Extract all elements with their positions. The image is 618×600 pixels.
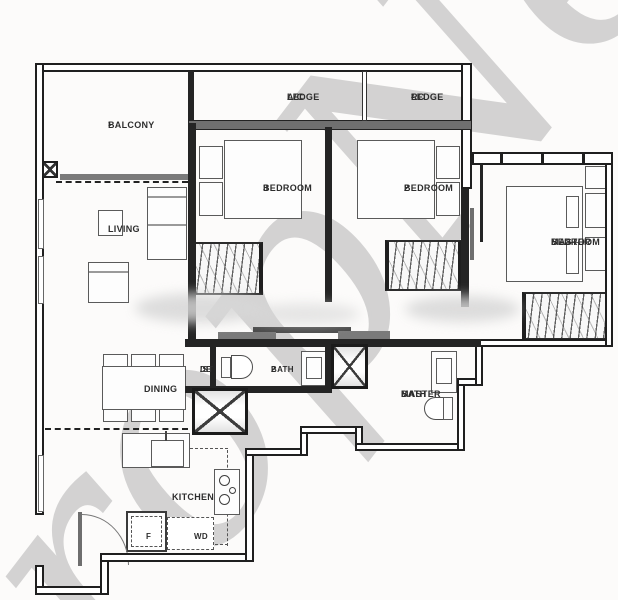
wall (35, 63, 472, 72)
wall (362, 71, 367, 121)
balcony-column (42, 161, 58, 178)
toilet-master-bath (424, 397, 444, 420)
window (38, 199, 44, 249)
shower (331, 344, 368, 389)
balcony-boundary-dashed (56, 181, 188, 183)
wall (100, 553, 253, 562)
wall (475, 339, 613, 347)
wall (300, 426, 362, 434)
entrance-door (78, 512, 82, 566)
wall (461, 189, 469, 307)
sliding-door (338, 331, 390, 339)
sofa-seat-line (148, 196, 186, 198)
dining-chair (131, 354, 156, 367)
wardrobe-bedroom2 (385, 240, 462, 291)
dining-chair (159, 409, 184, 422)
sofa (88, 262, 129, 303)
bed-bedroom2 (357, 140, 435, 219)
wall (245, 450, 254, 562)
sofa-seat-line (148, 224, 186, 226)
nightstand (436, 146, 460, 179)
wall (355, 443, 465, 451)
master-bedroom-door (470, 208, 474, 260)
kitchen-boundary-dashed (45, 428, 188, 430)
window-mullion (500, 152, 503, 165)
wardrobe-bedroom3 (191, 242, 263, 295)
wardrobe-master-bedroom (522, 292, 609, 340)
dining-chair (159, 354, 184, 367)
wall (480, 164, 483, 242)
wall (605, 152, 613, 347)
counter-dashed (190, 448, 228, 449)
window (38, 455, 44, 512)
wall (457, 378, 465, 451)
blur-artifact (250, 303, 360, 325)
dining-chair (103, 354, 128, 367)
sofa-seat-line (89, 271, 128, 273)
blur-artifact (405, 296, 520, 322)
wall (188, 71, 194, 123)
nightstand (199, 182, 223, 216)
window-mullion (582, 152, 585, 165)
sliding-door (218, 332, 276, 339)
window-mullion (541, 152, 544, 165)
bed-bedroom3 (224, 140, 302, 219)
toilet-tank (443, 397, 453, 420)
kitchen-sink (151, 440, 184, 467)
wall (325, 127, 332, 302)
nightstand (199, 146, 223, 179)
sink-bath2 (306, 357, 322, 379)
floor-plan: PropNex (0, 0, 618, 600)
blur-artifact (135, 293, 265, 323)
wall (245, 448, 308, 456)
dining-chair (131, 409, 156, 422)
burner (219, 475, 230, 486)
burner (219, 494, 230, 505)
faucet (165, 431, 167, 441)
dining-chair (103, 409, 128, 422)
balcony-sliding-door (60, 174, 188, 180)
toilet-tank (221, 357, 231, 378)
sink-master-bath (436, 358, 452, 384)
burner (229, 487, 236, 494)
pillow (566, 196, 579, 228)
wall (35, 586, 108, 595)
shaft (192, 388, 248, 435)
window (38, 256, 44, 304)
